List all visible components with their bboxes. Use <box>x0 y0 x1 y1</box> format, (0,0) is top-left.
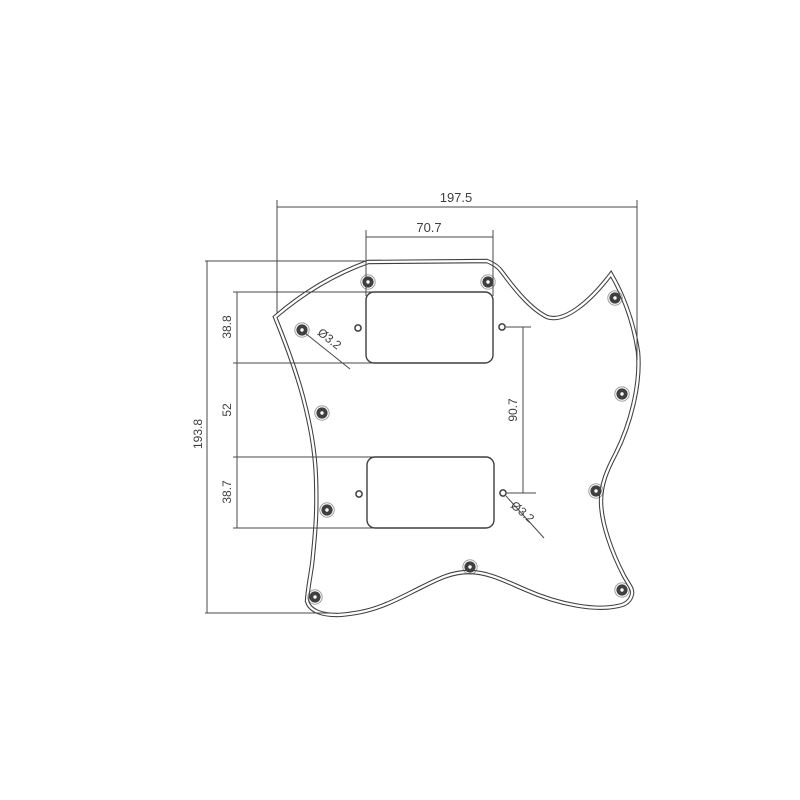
hole-span-label: 90.7 <box>506 398 520 422</box>
overall-height-label: 193.8 <box>191 419 205 449</box>
overall-width-label: 197.5 <box>440 190 473 205</box>
pickup-width-label: 70.7 <box>416 220 441 235</box>
technical-drawing-page: 197.5 70.7 193.8 38.8 52 38.7 90.7 Ø3.2 … <box>0 0 800 800</box>
upper-hole-diameter-label: Ø3.2 <box>315 325 344 352</box>
screw-hole-bottom-right <box>615 583 629 597</box>
screw-hole-top-left <box>361 275 375 289</box>
pickup-gap-label: 52 <box>220 403 234 417</box>
pickup-mount-holes <box>355 324 506 497</box>
lower-hole-diameter-label: Ø3.2 <box>508 498 537 526</box>
screw-hole-right-upper <box>615 387 629 401</box>
screw-holes <box>295 275 629 604</box>
screw-hole-left-lower <box>320 503 334 517</box>
screw-hole-horn-tip <box>608 291 622 305</box>
screw-hole-top-right <box>481 275 495 289</box>
neck-cutout-height-label: 38.8 <box>220 315 234 339</box>
bridge-pickup-cutout <box>367 457 494 528</box>
screw-hole-right-lower <box>589 484 603 498</box>
neck-pickup-cutout <box>366 292 493 363</box>
screw-hole-bottom-left <box>308 590 322 604</box>
mount-hole-bridge-right <box>500 490 506 496</box>
mount-hole-neck-right <box>499 324 505 330</box>
mount-hole-neck-left <box>355 325 361 331</box>
screw-hole-left-middle <box>315 406 329 420</box>
bridge-cutout-height-label: 38.7 <box>220 480 234 504</box>
mount-hole-bridge-left <box>356 491 362 497</box>
pickguard-outline <box>275 261 638 615</box>
pickguard-drawing: 197.5 70.7 193.8 38.8 52 38.7 90.7 Ø3.2 … <box>0 0 800 800</box>
screw-hole-left-point <box>295 323 309 337</box>
screw-hole-bottom-middle <box>463 560 477 574</box>
